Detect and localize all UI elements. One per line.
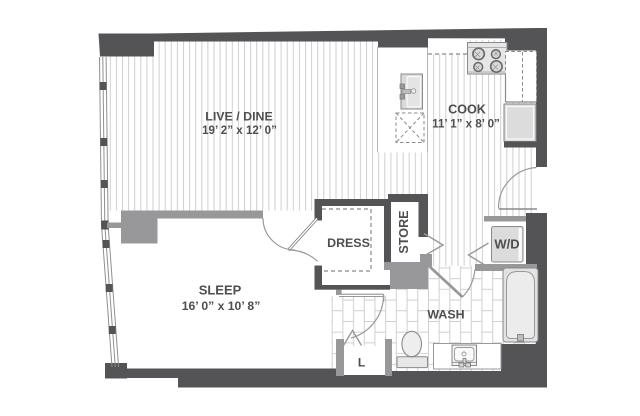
svg-text:L: L [358, 356, 365, 370]
svg-text:WASH: WASH [427, 308, 464, 322]
svg-text:11’ 1” x 8’ 0”: 11’ 1” x 8’ 0” [432, 118, 500, 131]
svg-text:W/D: W/D [494, 237, 519, 252]
svg-text:SLEEP: SLEEP [199, 283, 242, 298]
svg-text:LIVE / DINE: LIVE / DINE [205, 110, 272, 124]
svg-text:19’ 2” x 12’ 0”: 19’ 2” x 12’ 0” [202, 124, 277, 137]
svg-text:STORE: STORE [397, 210, 411, 253]
svg-text:COOK: COOK [448, 103, 486, 117]
svg-text:DRESS: DRESS [327, 236, 370, 250]
svg-text:16’ 0” x 10’ 8”: 16’ 0” x 10’ 8” [182, 299, 261, 313]
